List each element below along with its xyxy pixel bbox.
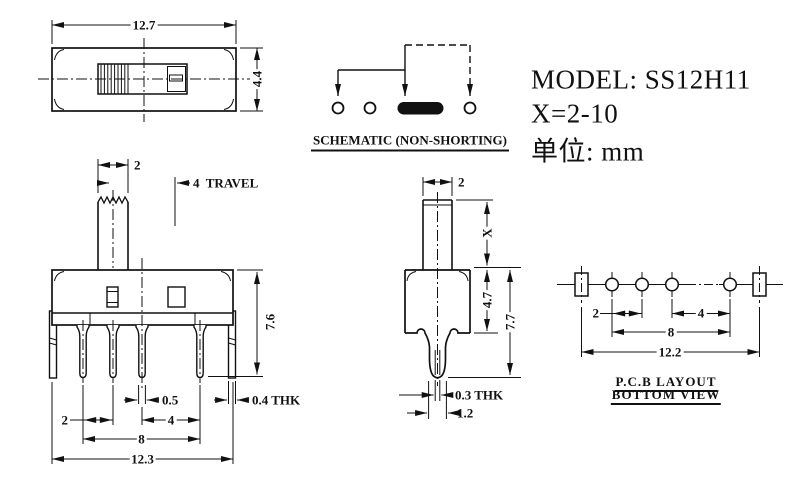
terminal-circle xyxy=(465,103,476,114)
schematic-title: SCHEMATIC (NON-SHORTING) xyxy=(311,133,509,152)
drawing-sheet: 12.7 4.4 SCHEMATIC (NON-SHORTING) MODEL:… xyxy=(0,0,800,480)
knob-width-dim xyxy=(98,159,128,193)
side-dims xyxy=(399,200,521,419)
pin-hole xyxy=(666,278,679,291)
switch-body-side xyxy=(405,270,470,378)
bracket-thickness-label: 0.4 THK xyxy=(252,394,300,407)
terminal-circle xyxy=(365,103,376,114)
pin-span-label: 8 xyxy=(136,433,147,446)
pin-hole xyxy=(724,278,737,291)
side-view xyxy=(399,177,521,419)
top-height-label: 4.4 xyxy=(251,69,264,89)
top-width-label: 12.7 xyxy=(131,19,158,32)
terminal-pins xyxy=(77,325,206,378)
pin-width-label: 0.5 xyxy=(162,394,178,407)
pin-thickness-label: 0.3 THK xyxy=(455,389,503,402)
knob-width-label: 2 xyxy=(134,159,141,172)
overall-height-label: 7.7 xyxy=(504,312,517,332)
overall-span-label: 12.2 xyxy=(657,346,684,359)
unit-label: 单位: mm xyxy=(531,130,644,169)
overall-width-label: 12.3 xyxy=(129,453,156,466)
hole-span-label: 8 xyxy=(666,326,677,339)
pin-hole xyxy=(636,278,649,291)
travel-dim xyxy=(98,177,190,226)
top-view xyxy=(38,20,263,122)
pcb-subtitle: BOTTOM VIEW xyxy=(611,387,721,405)
model-number: MODEL: SS12H11 xyxy=(531,65,751,96)
contact-bar xyxy=(398,103,443,115)
side-body-height-label: 4.7 xyxy=(481,290,494,310)
pin-pitch-small-label: 2 xyxy=(62,414,69,427)
travel-label: 4 TRAVEL xyxy=(193,177,258,190)
hole-pitch-small-label: 2 xyxy=(593,307,600,320)
x-range: X=2-10 xyxy=(531,99,618,130)
stem-height-label: X xyxy=(481,226,494,239)
front-view xyxy=(50,159,264,464)
body-height-label: 7.6 xyxy=(264,314,277,330)
stem-width-label: 2 xyxy=(458,176,465,189)
pin-pitch-large-label: 4 xyxy=(166,414,177,427)
hole-pitch-large-label: 4 xyxy=(696,307,707,320)
pcb-layout xyxy=(557,266,783,357)
schematic-diagram xyxy=(333,45,476,114)
pin-hole xyxy=(606,278,619,291)
terminal-circle xyxy=(333,103,344,114)
side-pin-width-label: 1.2 xyxy=(457,407,473,420)
